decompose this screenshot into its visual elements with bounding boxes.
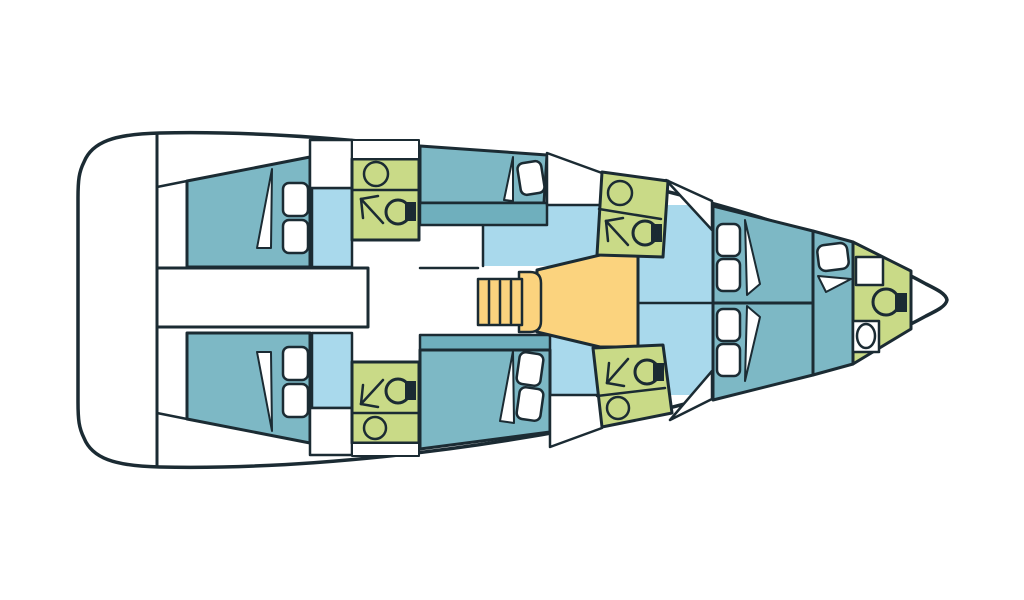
forward-port-cabin [713,206,813,303]
mid-top-locker [547,153,602,205]
pillow-icon [516,351,544,386]
pillow-icon [717,309,740,341]
yacht-deck-plan [0,0,1024,600]
sink-icon [857,324,875,348]
aft-port-locker [310,140,352,188]
aft-port-head-locker [352,140,419,159]
mid-forward-starboard-head-room [593,345,672,427]
mid-forward-starboard-head [593,345,672,427]
mid-starboard-shelf [420,335,550,350]
bow-berth [813,231,853,375]
aft-port-cabin-floor [312,188,352,267]
galley [537,255,638,347]
central-corridor [157,268,368,327]
mid-bottom-locker [550,395,602,447]
pillow-icon [516,386,544,421]
mid-port-shelf [420,203,547,225]
aft-port-head [352,140,419,240]
pillow-icon [817,242,850,271]
pillow-icon [717,224,740,256]
mid-forward-port-head [597,172,668,257]
forward-starboard-cabin [713,303,813,400]
aft-starboard-head-locker [352,443,419,456]
bow-counter [856,257,883,285]
pillow-icon [283,384,308,417]
pillow-icon [717,259,740,291]
deck-plan-svg [0,0,1024,600]
bow-head [853,242,911,364]
pillow-icon [717,344,740,376]
pillow-icon [283,220,308,253]
aft-starboard-locker [310,408,352,455]
pillow-icon [517,160,546,195]
pillow-icon [283,183,308,216]
aft-starboard-head [352,362,419,456]
companionway-stairs [478,272,541,332]
pillow-icon [283,347,308,380]
aft-starboard-cabin-floor [312,333,352,408]
